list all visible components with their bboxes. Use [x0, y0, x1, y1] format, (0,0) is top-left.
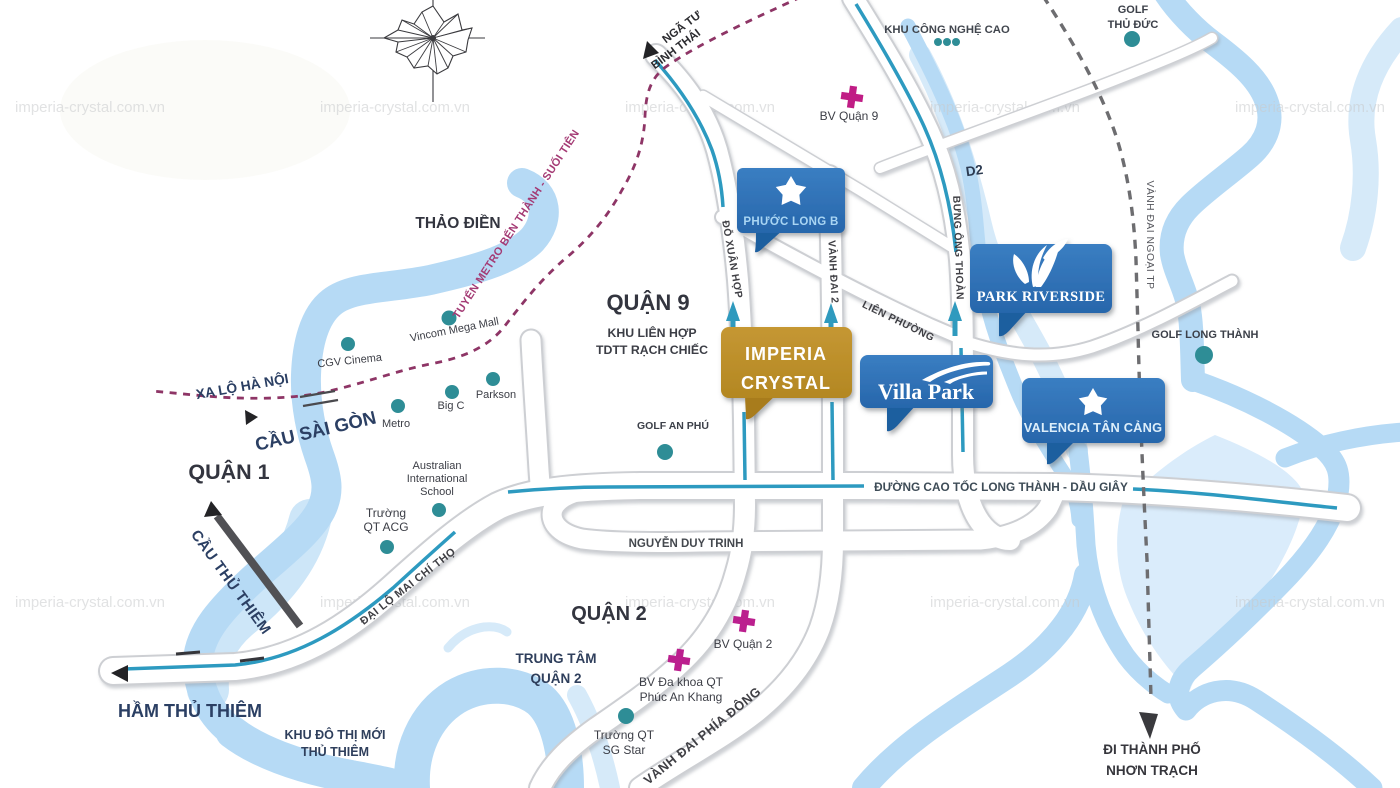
- svg-text:GOLF AN PHÚ: GOLF AN PHÚ: [637, 419, 709, 432]
- svg-text:BV Quận 2: BV Quận 2: [714, 637, 773, 651]
- svg-text:International: International: [407, 473, 468, 485]
- svg-text:BV Quận 9: BV Quận 9: [820, 109, 879, 123]
- svg-text:imperia-crystal.com.vn: imperia-crystal.com.vn: [320, 99, 470, 116]
- svg-text:VÀNH ĐAI NGOẠI TP: VÀNH ĐAI NGOẠI TP: [1144, 180, 1157, 289]
- svg-text:TRUNG TÂM: TRUNG TÂM: [516, 651, 597, 666]
- svg-text:QT ACG: QT ACG: [363, 520, 408, 534]
- svg-text:QUẬN 2: QUẬN 2: [571, 601, 647, 625]
- svg-text:QUẬN 9: QUẬN 9: [606, 290, 689, 315]
- svg-text:THẢO ĐIỀN: THẢO ĐIỀN: [415, 215, 500, 232]
- svg-text:CRYSTAL: CRYSTAL: [741, 373, 831, 393]
- svg-text:KHU LIÊN HỢP: KHU LIÊN HỢP: [607, 325, 696, 340]
- svg-text:QUẬN 2: QUẬN 2: [530, 671, 581, 686]
- svg-text:D2: D2: [965, 162, 984, 179]
- svg-text:GOLF: GOLF: [1118, 4, 1149, 16]
- svg-text:ĐI THÀNH PHỐ: ĐI THÀNH PHỐ: [1103, 742, 1201, 757]
- svg-text:imperia-crystal.com.vn: imperia-crystal.com.vn: [15, 99, 165, 116]
- svg-text:School: School: [420, 486, 454, 498]
- svg-text:ĐƯỜNG CAO TỐC LONG THÀNH - DẦU: ĐƯỜNG CAO TỐC LONG THÀNH - DẦU GIÂY: [874, 480, 1128, 494]
- svg-text:NHƠN TRẠCH: NHƠN TRẠCH: [1106, 763, 1198, 778]
- svg-text:Trường: Trường: [366, 506, 406, 520]
- svg-text:Trường QT: Trường QT: [594, 728, 655, 742]
- svg-text:Big C: Big C: [438, 400, 465, 412]
- svg-text:Australian: Australian: [413, 460, 462, 472]
- svg-text:Villa Park: Villa Park: [878, 379, 975, 404]
- svg-text:Metro: Metro: [382, 418, 410, 430]
- svg-text:TDTT RẠCH CHIẾC: TDTT RẠCH CHIẾC: [596, 342, 708, 357]
- svg-text:SG Star: SG Star: [603, 743, 646, 757]
- svg-text:NGUYỄN DUY TRINH: NGUYỄN DUY TRINH: [629, 537, 744, 550]
- svg-text:imperia-crystal.com.vn: imperia-crystal.com.vn: [625, 594, 775, 611]
- svg-text:imperia-crystal.com.vn: imperia-crystal.com.vn: [930, 594, 1080, 611]
- svg-text:Parkson: Parkson: [476, 389, 516, 401]
- svg-text:imperia-crystal.com.vn: imperia-crystal.com.vn: [15, 594, 165, 611]
- svg-text:Phúc An Khang: Phúc An Khang: [640, 690, 723, 704]
- svg-text:KHU ĐÔ THỊ MỚI: KHU ĐÔ THỊ MỚI: [285, 727, 386, 742]
- svg-text:PHƯỚC LONG B: PHƯỚC LONG B: [743, 215, 838, 228]
- svg-text:GOLF LONG THÀNH: GOLF LONG THÀNH: [1152, 328, 1259, 341]
- svg-text:BV Đa khoa QT: BV Đa khoa QT: [639, 675, 724, 689]
- svg-text:THỦ THIÊM: THỦ THIÊM: [301, 744, 369, 759]
- svg-text:KHU CÔNG NGHỆ CAO: KHU CÔNG NGHỆ CAO: [884, 23, 1010, 36]
- svg-text:imperia-crystal.com.vn: imperia-crystal.com.vn: [1235, 99, 1385, 116]
- svg-text:HẦM THỦ THIÊM: HẦM THỦ THIÊM: [118, 700, 262, 721]
- svg-text:PARK RIVERSIDE: PARK RIVERSIDE: [977, 289, 1105, 305]
- svg-text:VALENCIA TÂN CẢNG: VALENCIA TÂN CẢNG: [1024, 420, 1162, 435]
- svg-text:IMPERIA: IMPERIA: [745, 344, 827, 364]
- svg-text:THỦ ĐỨC: THỦ ĐỨC: [1108, 18, 1159, 31]
- svg-text:imperia-crystal.com.vn: imperia-crystal.com.vn: [1235, 594, 1385, 611]
- svg-text:QUẬN 1: QUẬN 1: [188, 459, 269, 484]
